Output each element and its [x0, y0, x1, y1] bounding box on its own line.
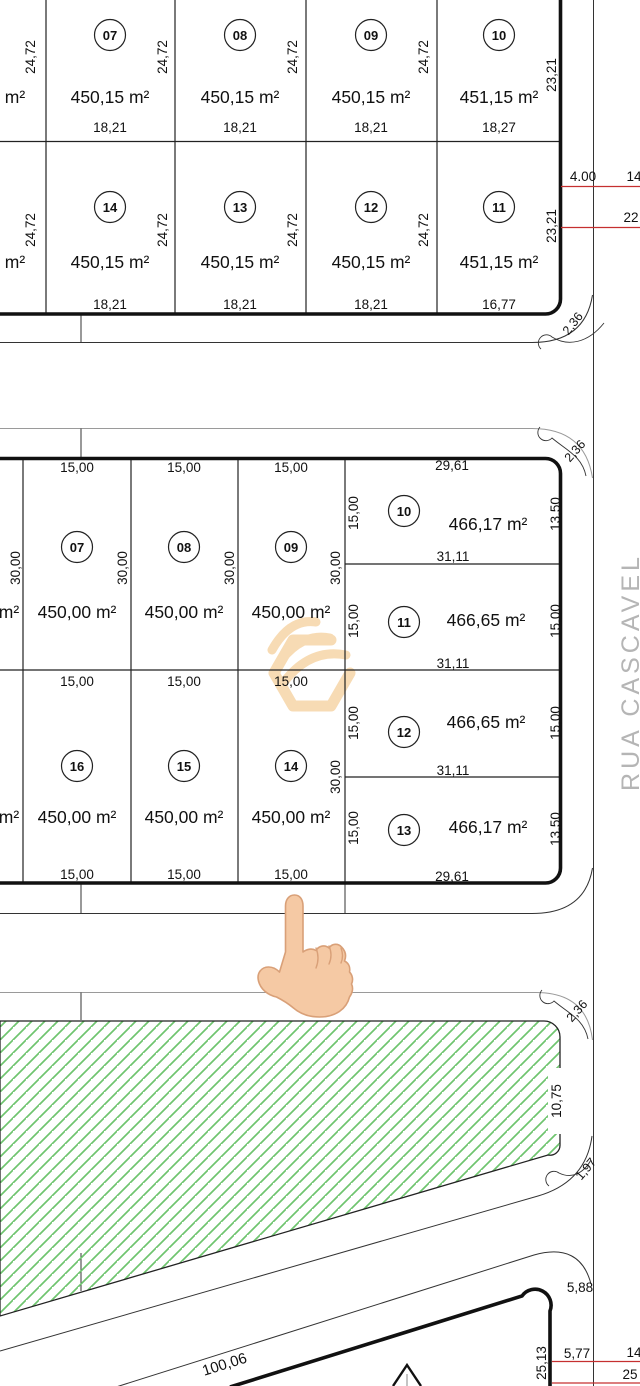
lot-side-dim: 13,50 — [548, 497, 563, 531]
lot-number: 07 — [70, 540, 84, 555]
lot-number: 08 — [233, 28, 247, 43]
lot-front-dim: 16,77 — [482, 297, 516, 312]
lot-number: 14 — [284, 759, 299, 774]
lot-number: 10 — [397, 504, 411, 519]
lot-side-dim: 24,72 — [155, 40, 170, 74]
road-edge-above-block-c — [116, 1252, 591, 1386]
lot-area: 450,15 m² — [201, 87, 280, 107]
red-dim-label: 4.00 — [570, 169, 596, 184]
watermark-logo — [272, 622, 350, 706]
lot-number: 07 — [103, 28, 117, 43]
lot-side-dim: 30,00 — [8, 551, 23, 585]
lot-area: 450,15 m² — [201, 252, 280, 272]
lot-number: 13 — [233, 200, 247, 215]
red-dim-label: 14 — [626, 1345, 640, 1360]
lot-area: 450,15 m² — [71, 252, 150, 272]
corner-dim-label: 2,36 — [560, 310, 586, 338]
lot-side-dim: 13,50 — [548, 812, 563, 846]
corner-dim-label: 1,97 — [573, 1155, 599, 1183]
lot-area: 450,00 m² — [38, 602, 117, 622]
lot-front-dim: 18,21 — [93, 120, 127, 135]
lot-area: 451,15 m² — [460, 87, 539, 107]
lot-front-dim: 18,21 — [93, 297, 127, 312]
lot-area: 466,17 m² — [449, 514, 528, 534]
lot-top-dim: 29,61 — [435, 458, 469, 473]
lot-front-dim: 18,21 — [354, 120, 388, 135]
lot-side-dim: 24,72 — [23, 40, 38, 74]
corner-dim-label: 2,36 — [564, 997, 591, 1024]
lot-side-dim: 24,72 — [416, 40, 431, 74]
lot-side-dim: 15,00 — [548, 604, 563, 638]
lot-number: 13 — [397, 823, 411, 838]
lot-front-dim: 15,00 — [60, 867, 94, 882]
red-dim-label: 25 — [622, 1367, 637, 1382]
lot-area: 450,00 m² — [252, 602, 331, 622]
lot-area: 466,65 m² — [447, 712, 526, 732]
lot-number: 11 — [492, 200, 506, 215]
lot-number: 11 — [397, 615, 411, 630]
lot-front-dim: 18,21 — [223, 120, 257, 135]
lot-area-partial: m² — [5, 87, 26, 107]
green-area-polygon — [0, 1021, 560, 1316]
lot-bottom-dim: 29,61 — [435, 869, 469, 884]
lot-number: 12 — [397, 725, 411, 740]
block-c-right-dim: 25,13 — [534, 1346, 549, 1380]
lot-area-partial: m² — [0, 807, 19, 827]
lot-front-dim: 18,21 — [223, 297, 257, 312]
lot-side-dim: 23,21 — [544, 58, 559, 92]
lot-side-dim: 15,00 — [346, 811, 361, 845]
lot-number: 15 — [177, 759, 191, 774]
red-dim-label: 22 — [623, 210, 638, 225]
block-c-edge-dim: 100,06 — [200, 1350, 249, 1380]
corner-dim-label: 2,36 — [562, 437, 589, 464]
lot-front-dim: 18,21 — [354, 297, 388, 312]
lot-side-dim: 24,72 — [285, 213, 300, 247]
lot-area-partial: m² — [5, 252, 26, 272]
lot-side-dim: 24,72 — [23, 213, 38, 247]
lot-side-dim: 24,72 — [155, 213, 170, 247]
lot-number: 09 — [284, 540, 298, 555]
lot-number: 09 — [364, 28, 378, 43]
lot-bottom-dim: 31,11 — [437, 763, 470, 778]
lot-area-partial: m² — [0, 602, 19, 622]
block-c: 100,06 5,88 25,13 5,77 14 25 — [200, 1280, 640, 1386]
lot-bottom-dim: 31,11 — [437, 549, 470, 564]
lot-area: 450,00 m² — [38, 807, 117, 827]
lot-area: 450,15 m² — [332, 87, 411, 107]
lot-area: 450,00 m² — [145, 807, 224, 827]
subdivision-plan-drawing: 24,72 m² 07 24,72 450,15 m² 18,21 08 24,… — [0, 0, 640, 1386]
lot-side-dim: 24,72 — [285, 40, 300, 74]
lot-side-dim: 30,00 — [328, 551, 343, 585]
lot-number: 10 — [492, 28, 506, 43]
lot-side-dim: 15,00 — [548, 706, 563, 740]
lot-front-dim: 15,00 — [167, 867, 201, 882]
lot-side-dim: 30,00 — [115, 551, 130, 585]
lot-number: 14 — [103, 200, 118, 215]
lot-number: 12 — [364, 200, 378, 215]
lot-side-dim: 15,00 — [346, 496, 361, 530]
lot-front-dim: 15,00 — [167, 460, 201, 475]
lot-area: 450,00 m² — [145, 602, 224, 622]
lot-side-dim: 15,00 — [346, 604, 361, 638]
block-b: 15,00 15,00 15,00 29,61 30,00 m² 07 30,0… — [0, 458, 563, 884]
lot-area: 466,17 m² — [449, 817, 528, 837]
lot-front-dim: 15,00 — [60, 674, 94, 689]
lot-bottom-dim: 31,11 — [437, 656, 470, 671]
green-area-right-dim: 10,75 — [549, 1084, 564, 1118]
block-c-corner-dim: 5,88 — [567, 1280, 593, 1295]
lot-area: 450,15 m² — [332, 252, 411, 272]
lot-area: 466,65 m² — [447, 610, 526, 630]
lot-front-dim: 15,00 — [274, 867, 308, 882]
lot-front-dim: 15,00 — [60, 460, 94, 475]
lot-side-dim: 23,21 — [544, 209, 559, 243]
lot-side-dim: 30,00 — [222, 551, 237, 585]
lot-side-dim: 30,00 — [328, 760, 343, 794]
lot-area: 451,15 m² — [460, 252, 539, 272]
lot-side-dim: 15,00 — [346, 706, 361, 740]
lot-area: 450,15 m² — [71, 87, 150, 107]
lot-front-dim: 15,00 — [274, 674, 308, 689]
block-c-border — [230, 1289, 551, 1386]
lot-area: 450,00 m² — [252, 807, 331, 827]
street-name-label: RUA CASCAVEL — [617, 553, 640, 791]
lot-number: 16 — [70, 759, 84, 774]
lot-front-dim: 15,00 — [167, 674, 201, 689]
lot-front-dim: 15,00 — [274, 460, 308, 475]
plan-viewport: 24,72 m² 07 24,72 450,15 m² 18,21 08 24,… — [0, 0, 640, 1386]
block-c-right-dim: 5,77 — [564, 1346, 590, 1361]
lot-number: 08 — [177, 540, 191, 555]
lot-side-dim: 24,72 — [416, 213, 431, 247]
red-dim-label: 14 — [626, 169, 640, 184]
block-a: 24,72 m² 07 24,72 450,15 m² 18,21 08 24,… — [0, 0, 640, 314]
lot-front-dim: 18,27 — [482, 120, 516, 135]
